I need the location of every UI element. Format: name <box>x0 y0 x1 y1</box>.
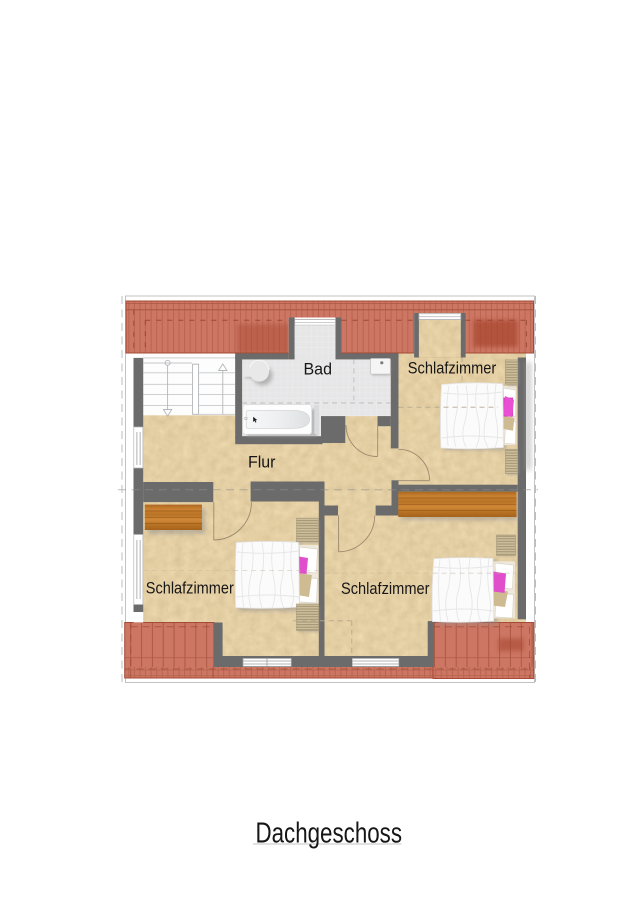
svg-text:Schlafzimmer: Schlafzimmer <box>408 358 497 377</box>
svg-text:Dachgeschoss: Dachgeschoss <box>256 818 403 850</box>
svg-text:Schlafzimmer: Schlafzimmer <box>341 579 430 598</box>
svg-text:Flur: Flur <box>248 453 276 472</box>
svg-text:Schlafzimmer: Schlafzimmer <box>146 579 234 598</box>
svg-text:Bad: Bad <box>304 360 333 379</box>
